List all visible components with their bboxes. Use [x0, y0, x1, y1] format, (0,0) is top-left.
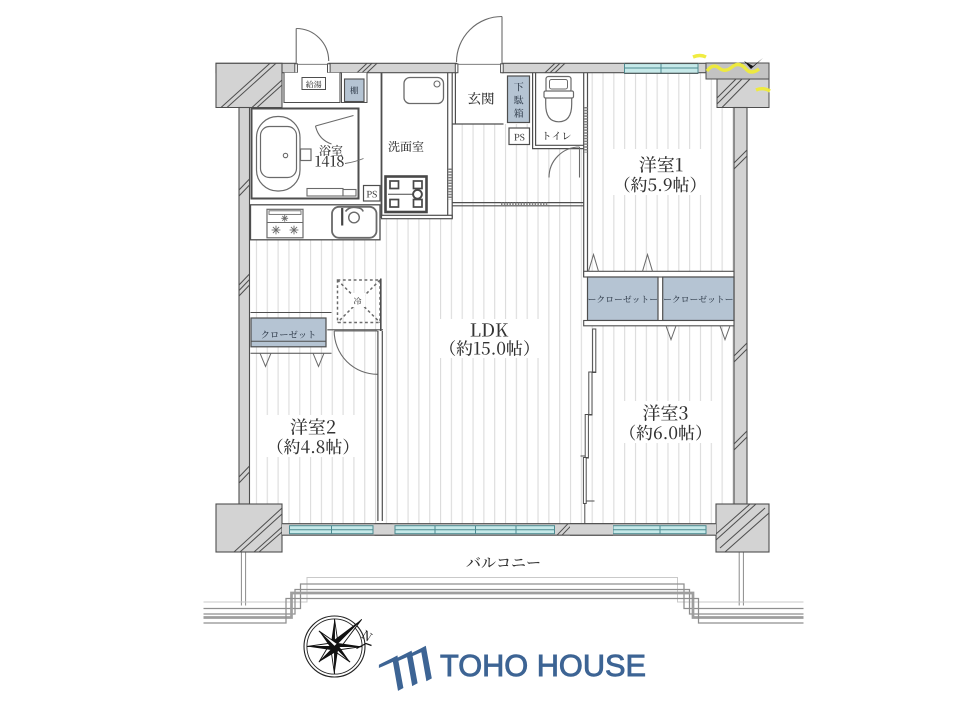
svg-text:TOHO HOUSE: TOHO HOUSE: [440, 648, 646, 683]
